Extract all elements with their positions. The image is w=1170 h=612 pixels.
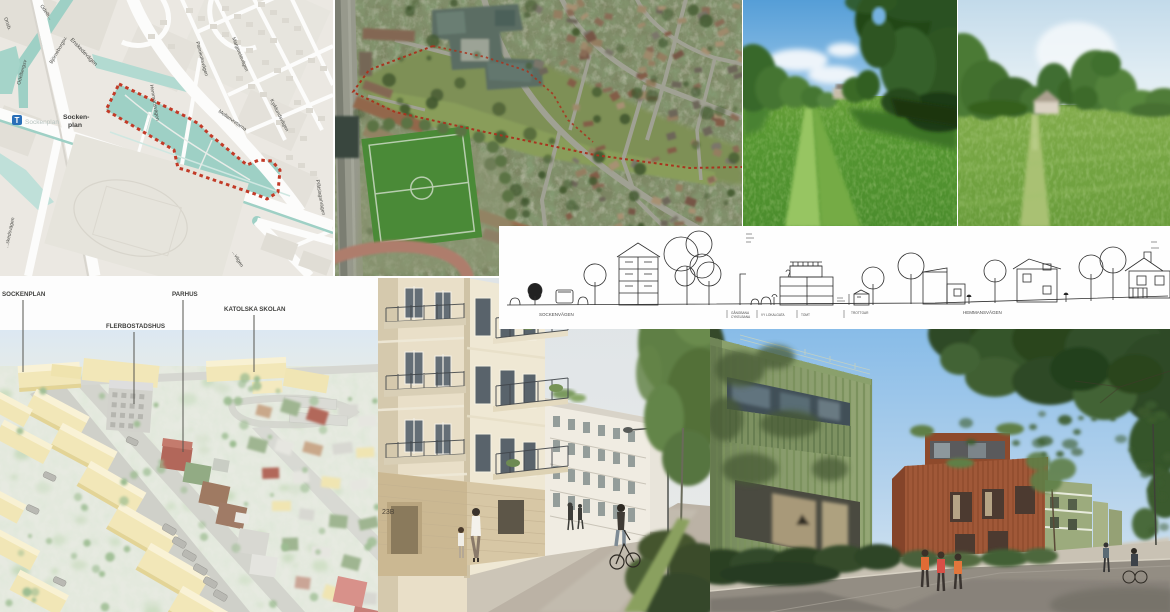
- svg-text:VY LOKALGATA: VY LOKALGATA: [761, 313, 785, 317]
- svg-text:TOMT: TOMT: [801, 313, 810, 317]
- svg-text:23B: 23B: [382, 509, 395, 516]
- svg-text:PARHUS: PARHUS: [172, 291, 198, 298]
- svg-text:CYKELBANA: CYKELBANA: [731, 315, 751, 319]
- svg-text:HEMMANSVÄGEN: HEMMANSVÄGEN: [963, 309, 1002, 315]
- svg-text:SOCKENPLAN: SOCKENPLAN: [2, 291, 46, 298]
- svg-text:Sockenplan: Sockenplan: [25, 119, 59, 126]
- svg-text:FLERBOSTADSHUS: FLERBOSTADSHUS: [106, 323, 165, 330]
- svg-text:TROTTOAR: TROTTOAR: [851, 311, 869, 315]
- svg-text:plan: plan: [68, 122, 82, 129]
- svg-text:T: T: [15, 116, 20, 125]
- svg-text:Socken-: Socken-: [63, 114, 89, 121]
- svg-text:SOCKENVÄGEN: SOCKENVÄGEN: [539, 311, 574, 317]
- svg-text:KATOLSKA SKOLAN: KATOLSKA SKOLAN: [224, 306, 286, 313]
